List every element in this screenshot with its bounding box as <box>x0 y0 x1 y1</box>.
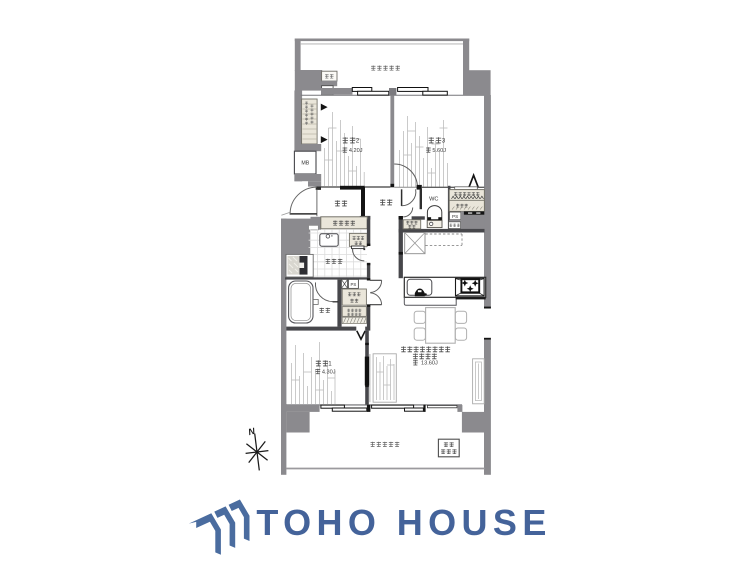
svg-text:MB: MB <box>301 161 309 167</box>
svg-text:13.60J: 13.60J <box>421 361 438 367</box>
svg-text:WC: WC <box>429 196 438 202</box>
svg-text:PS: PS <box>350 282 356 287</box>
svg-text:2: 2 <box>356 138 360 145</box>
svg-text:4.20J: 4.20J <box>349 148 363 154</box>
svg-text:1: 1 <box>328 361 332 368</box>
svg-text:4.30J: 4.30J <box>322 369 336 375</box>
svg-text:5.60J: 5.60J <box>432 148 446 154</box>
svg-text:3: 3 <box>442 138 446 145</box>
svg-text:TOHO HOUSE: TOHO HOUSE <box>256 502 551 543</box>
svg-text:PS: PS <box>452 214 458 219</box>
